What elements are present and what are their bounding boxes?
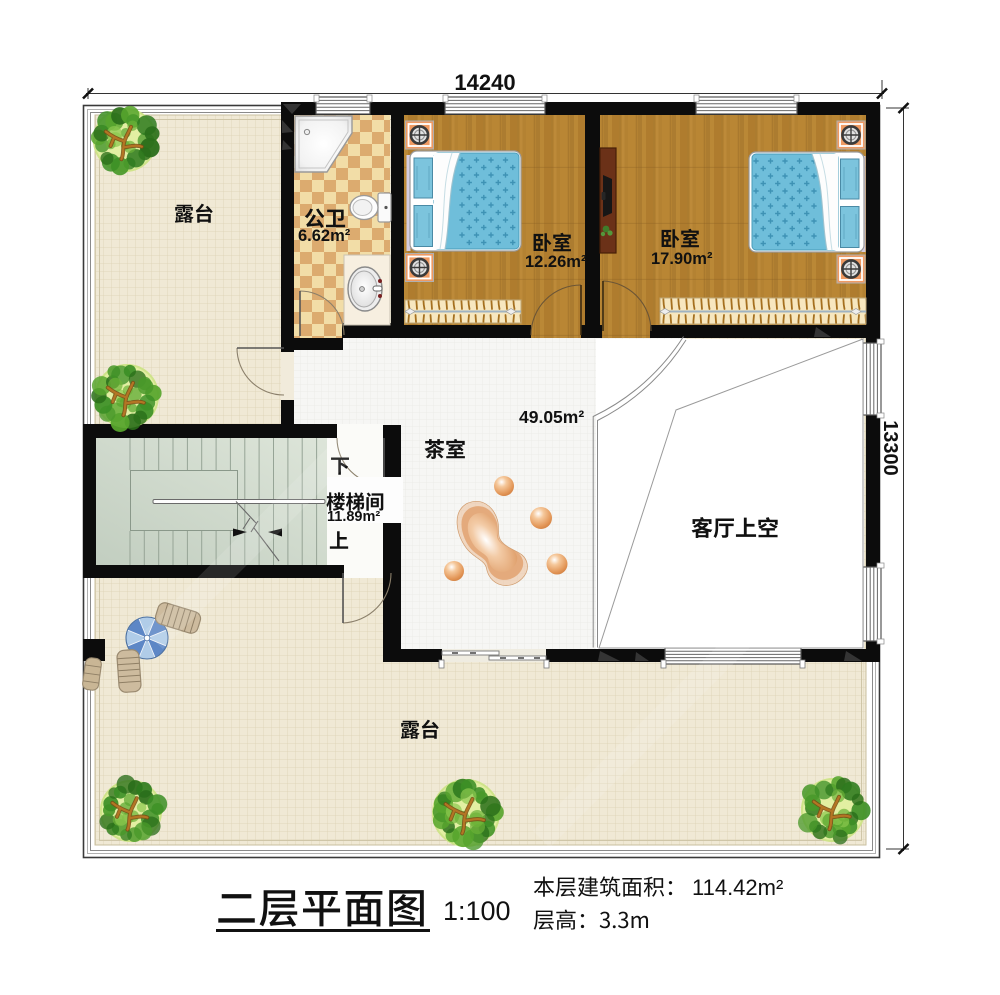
svg-text:12.26m²: 12.26m² — [525, 253, 587, 271]
svg-text:49.05m²: 49.05m² — [519, 407, 584, 427]
svg-text:13300: 13300 — [879, 420, 901, 476]
svg-text:14240: 14240 — [454, 70, 515, 95]
svg-text:11.89m²: 11.89m² — [327, 509, 380, 525]
svg-text:1:100: 1:100 — [443, 896, 511, 926]
svg-text:114.42m²: 114.42m² — [692, 875, 783, 900]
svg-text:6.62m²: 6.62m² — [298, 227, 351, 245]
svg-text:17.90m²: 17.90m² — [651, 250, 713, 268]
